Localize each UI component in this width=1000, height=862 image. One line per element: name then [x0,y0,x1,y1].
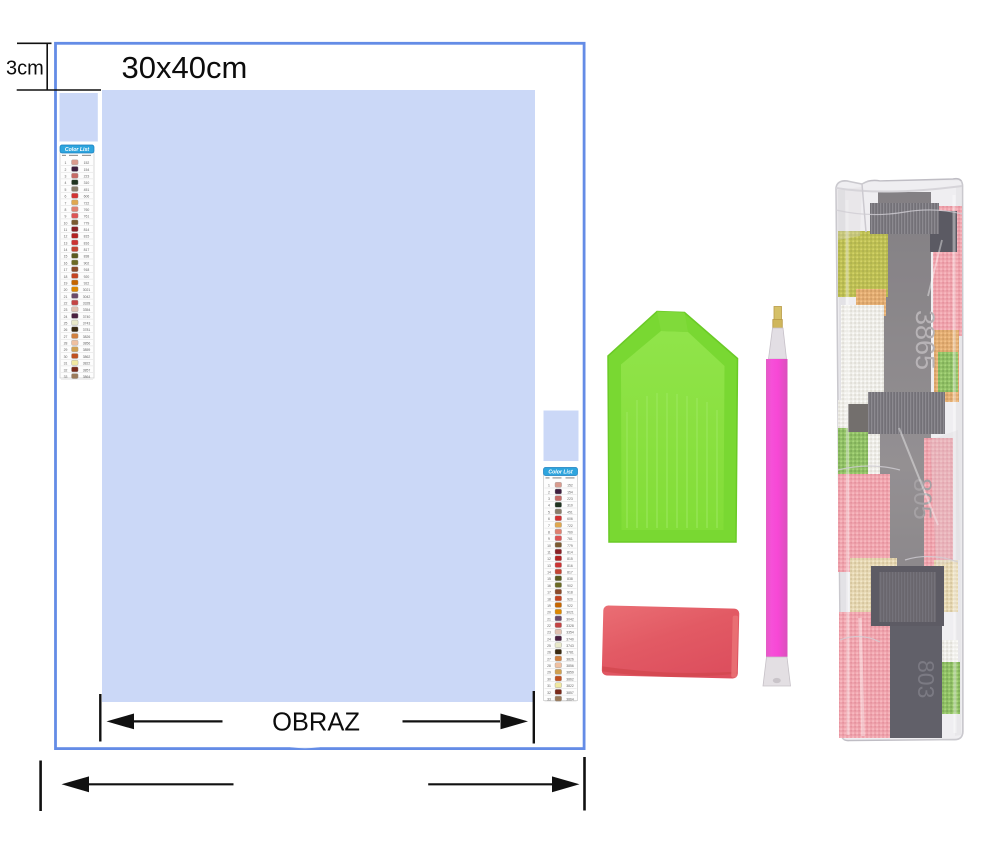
svg-text:30x40cm: 30x40cm [122,50,248,85]
svg-text:OBRAZ: OBRAZ [272,709,360,737]
svg-text:3cm: 3cm [6,58,44,80]
